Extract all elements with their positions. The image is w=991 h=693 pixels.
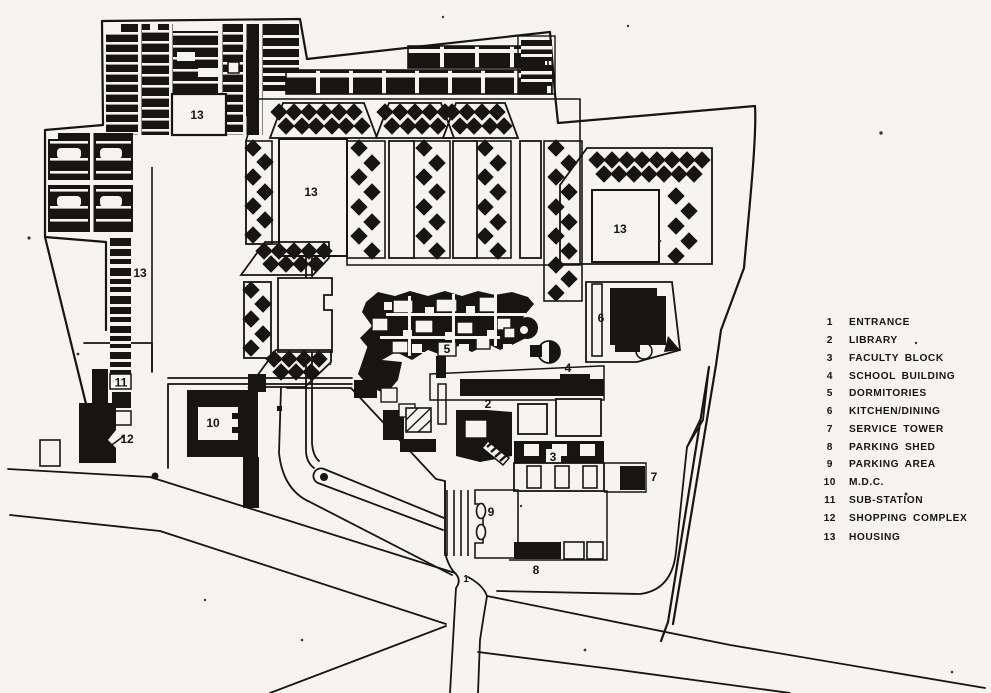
svg-text:M.D.C.: M.D.C.: [849, 477, 884, 488]
svg-text:KITCHEN/DINING: KITCHEN/DINING: [849, 406, 940, 417]
svg-text:12: 12: [120, 432, 134, 446]
svg-text:PARKING SHED: PARKING SHED: [849, 442, 935, 453]
svg-text:12: 12: [824, 513, 836, 524]
svg-text:11: 11: [115, 376, 128, 390]
svg-text:SUB-STATION: SUB-STATION: [849, 495, 923, 506]
svg-text:13: 13: [304, 185, 318, 199]
svg-text:3: 3: [827, 353, 833, 364]
svg-text:13: 13: [133, 266, 147, 280]
svg-text:SCHOOL BUILDING: SCHOOL BUILDING: [849, 371, 955, 382]
svg-text:8: 8: [827, 442, 833, 453]
svg-text:1: 1: [463, 574, 469, 585]
svg-text:7: 7: [651, 470, 658, 484]
svg-text:8: 8: [533, 563, 540, 577]
svg-text:PARKING AREA: PARKING AREA: [849, 459, 936, 470]
svg-text:10: 10: [206, 416, 220, 430]
svg-text:6: 6: [598, 311, 605, 325]
svg-text:FACULTY BLOCK: FACULTY BLOCK: [849, 353, 944, 364]
svg-text:11: 11: [824, 495, 836, 506]
svg-text:3: 3: [550, 450, 557, 464]
svg-text:2: 2: [485, 397, 492, 411]
svg-text:5: 5: [827, 388, 833, 399]
svg-text:5: 5: [444, 342, 451, 356]
svg-text:10: 10: [824, 477, 836, 488]
svg-text:13: 13: [613, 222, 627, 236]
svg-text:4: 4: [827, 371, 833, 382]
svg-text:13: 13: [824, 532, 836, 543]
svg-text:HOUSING: HOUSING: [849, 532, 900, 543]
svg-text:6: 6: [827, 406, 833, 417]
svg-text:SERVICE TOWER: SERVICE TOWER: [849, 424, 944, 435]
svg-text:LIBRARY: LIBRARY: [849, 335, 898, 346]
svg-text:ENTRANCE: ENTRANCE: [849, 317, 910, 328]
svg-text:9: 9: [488, 505, 495, 519]
svg-text:SHOPPING COMPLEX: SHOPPING COMPLEX: [849, 513, 967, 524]
svg-text:4: 4: [565, 361, 572, 375]
svg-text:2: 2: [827, 335, 833, 346]
svg-text:9: 9: [827, 459, 833, 470]
svg-text:13: 13: [190, 108, 204, 122]
svg-text:DORMITORIES: DORMITORIES: [849, 388, 927, 399]
svg-text:7: 7: [827, 424, 833, 435]
svg-text:1: 1: [827, 317, 833, 328]
